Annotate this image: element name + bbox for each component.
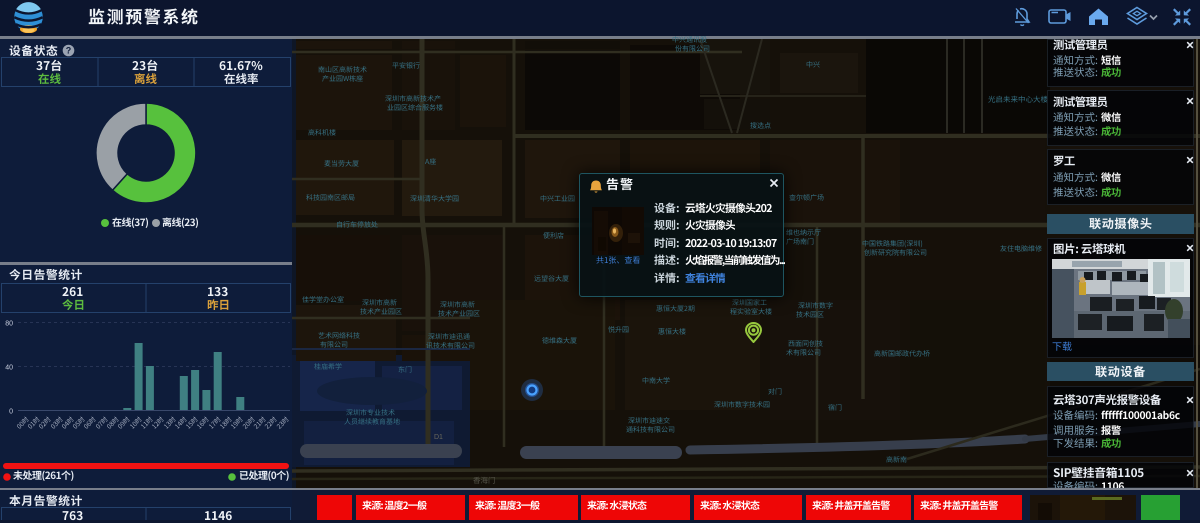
svg-text:80: 80 xyxy=(5,321,13,328)
svg-text:0: 0 xyxy=(9,409,13,416)
svg-text:?: ? xyxy=(66,46,72,56)
svg-text:40: 40 xyxy=(5,365,13,372)
